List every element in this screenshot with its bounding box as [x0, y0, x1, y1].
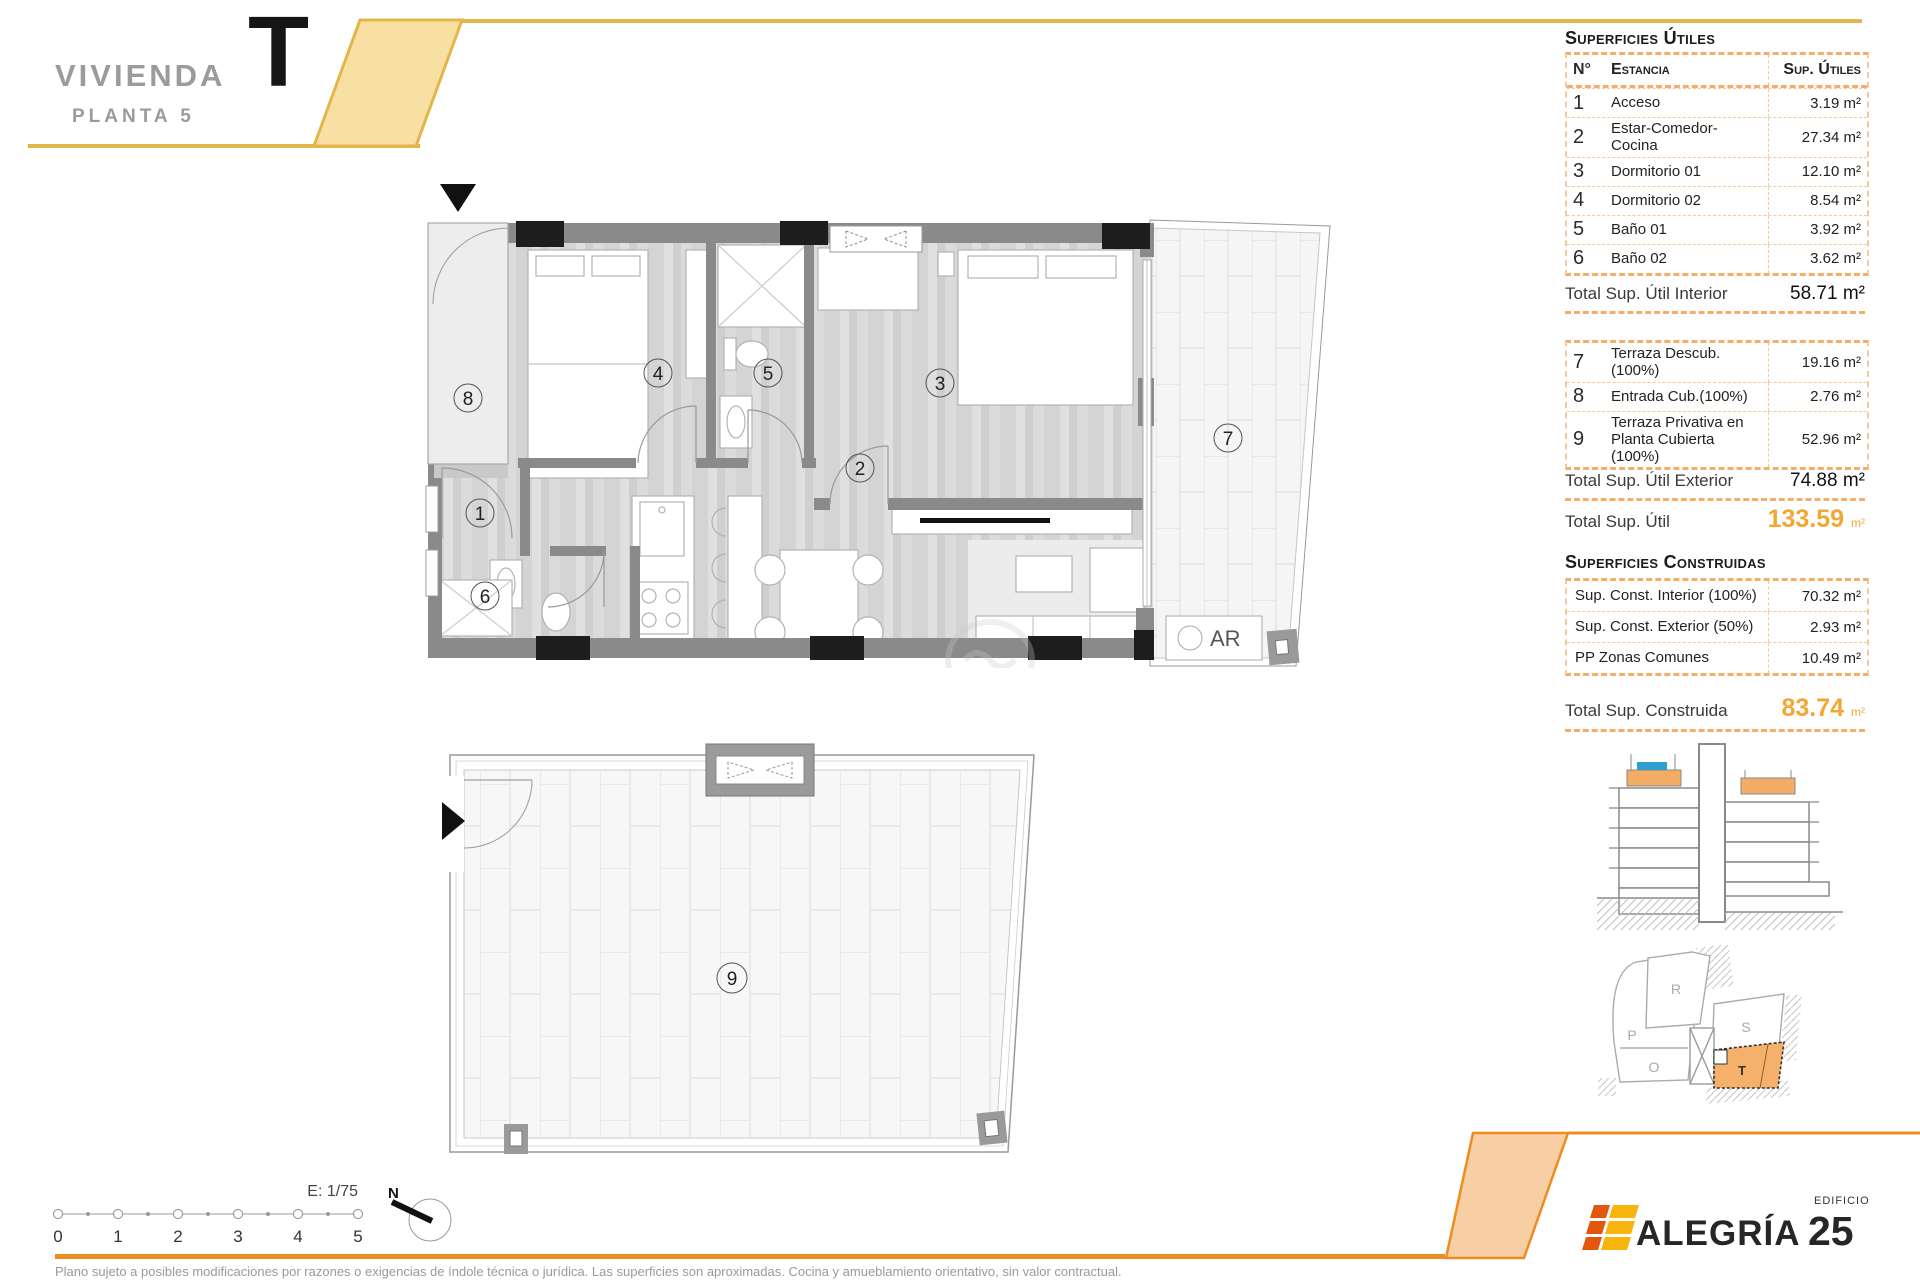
row-name: Estar-Comedor-Cocina — [1607, 118, 1768, 157]
building-section-diagram — [1595, 740, 1850, 935]
table-row: Sup. Const. Interior (100%)70.32 m² — [1567, 581, 1867, 611]
ar-box: AR — [1166, 616, 1262, 660]
col-value: Sup. Útiles — [1768, 55, 1867, 85]
room-label-6: 6 — [480, 587, 491, 608]
sheet-title: VIVIENDA — [55, 58, 225, 94]
row-num: 9 — [1567, 428, 1607, 451]
superficies-exterior-table: 7Terraza Descub.(100%)19.16 m² 8Entrada … — [1565, 340, 1869, 470]
unit-letter-t: T — [1738, 1063, 1746, 1078]
superficies-construidas-table: Sup. Const. Interior (100%)70.32 m² Sup.… — [1565, 578, 1869, 676]
entrance-8 — [428, 223, 509, 464]
superficies-utiles-title: Superficies Útiles — [1565, 28, 1865, 49]
total-util-label: Total Sup. Útil — [1565, 512, 1670, 532]
scale-bar: E: 1/75 0 1 2 3 4 5 N — [40, 1180, 470, 1250]
terrace-tiles — [464, 770, 1020, 1138]
row-num: 8 — [1567, 385, 1607, 408]
table-row: 6Baño 023.62 m² — [1567, 244, 1867, 273]
total-interior-label: Total Sup. Útil Interior — [1565, 284, 1728, 304]
row-value: 52.96 m² — [1768, 412, 1867, 468]
svg-text:2: 2 — [173, 1227, 182, 1246]
superficies-construidas-title: Superficies Construidas — [1565, 552, 1865, 573]
row-num: 3 — [1567, 160, 1607, 183]
row-name: Baño 02 — [1607, 248, 1768, 269]
total-construida-value: 83.74 — [1781, 694, 1844, 722]
row-value: 10.49 m² — [1768, 643, 1867, 673]
col-num: N° — [1567, 61, 1607, 79]
room-label-2: 2 — [855, 459, 866, 480]
row-value: 12.10 m² — [1768, 158, 1867, 186]
unit-t-highlight — [1714, 1042, 1784, 1088]
row-num: 2 — [1567, 126, 1607, 149]
terrace-anchor — [1267, 629, 1300, 665]
highlight-floor-blue — [1637, 762, 1667, 770]
brand-number: 25 — [1808, 1208, 1854, 1254]
skylight-box — [706, 744, 814, 796]
svg-text:1: 1 — [113, 1227, 122, 1246]
brand-name: ALEGRÍA — [1636, 1213, 1801, 1253]
total-exterior-row: Total Sup. Útil Exterior 74.88 m² — [1565, 470, 1865, 501]
table-row: PP Zonas Comunes10.49 m² — [1567, 642, 1867, 673]
row-name: Baño 01 — [1607, 219, 1768, 240]
roof-terrace-plan: 9 — [420, 700, 1080, 1180]
unit-letter-o: O — [1649, 1059, 1660, 1075]
row-num: 7 — [1567, 351, 1607, 374]
svg-text:4: 4 — [293, 1227, 302, 1246]
disclaimer-text: Plano sujeto a posibles modificaciones p… — [55, 1264, 1575, 1279]
title-parallelogram — [300, 16, 480, 150]
table-row: 5Baño 013.92 m² — [1567, 215, 1867, 244]
room-label-9: 9 — [727, 969, 738, 990]
row-value: 70.32 m² — [1768, 581, 1867, 611]
table-row: 7Terraza Descub.(100%)19.16 m² — [1567, 343, 1867, 382]
total-exterior-label: Total Sup. Útil Exterior — [1565, 471, 1733, 491]
table-row: 4Dormitorio 028.54 m² — [1567, 186, 1867, 215]
row-name: Entrada Cub.(100%) — [1607, 386, 1768, 407]
scale-ticks: 0 1 2 3 4 5 — [53, 1227, 362, 1246]
brand-parallelogram — [1446, 1133, 1568, 1258]
apartment-floor-plan: AR 1 2 3 4 5 6 7 8 — [340, 168, 1340, 668]
unit-letter-s: S — [1741, 1019, 1750, 1035]
room-label-4: 4 — [653, 364, 664, 385]
total-interior-value: 58.71 m² — [1790, 283, 1865, 305]
alegria-logo-icon — [1582, 1205, 1639, 1250]
total-construida-label: Total Sup. Construida — [1565, 701, 1728, 721]
ground-hatch-right — [1725, 912, 1835, 930]
brand-band: ALEGRÍA EDIFICIO 25 — [1440, 1126, 1920, 1280]
row-value: 2.93 m² — [1768, 612, 1867, 642]
room-label-5: 5 — [763, 364, 774, 385]
row-value: 2.76 m² — [1768, 383, 1867, 411]
total-util-row: Total Sup. Útil 133.59 m² — [1565, 505, 1865, 540]
row-value: 27.34 m² — [1768, 118, 1867, 157]
total-construida-row: Total Sup. Construida 83.74 m² — [1565, 694, 1865, 732]
room-label-1: 1 — [475, 504, 486, 525]
row-value: 19.16 m² — [1768, 343, 1867, 382]
north-arrow-icon: N — [388, 1185, 451, 1241]
entry-marker-icon — [440, 184, 476, 212]
table-row: 3Dormitorio 0112.10 m² — [1567, 157, 1867, 186]
table-row: Sup. Const. Exterior (50%)2.93 m² — [1567, 611, 1867, 642]
table-row: 8Entrada Cub.(100%)2.76 m² — [1567, 382, 1867, 411]
superficies-utiles-table: N° Estancia Sup. Útiles 1Acceso3.19 m² 2… — [1565, 52, 1869, 276]
top-accent-line — [360, 19, 1862, 23]
table-row: 2Estar-Comedor-Cocina27.34 m² — [1567, 117, 1867, 157]
row-name: PP Zonas Comunes — [1567, 647, 1768, 668]
row-value: 3.19 m² — [1768, 89, 1867, 117]
row-num: 1 — [1567, 92, 1607, 115]
room-label-8: 8 — [463, 389, 474, 410]
closet-symbol — [830, 226, 922, 252]
terrace-7 — [1150, 220, 1330, 666]
table-row: 1Acceso3.19 m² — [1567, 88, 1867, 117]
svg-text:0: 0 — [53, 1227, 62, 1246]
footer-accent-line — [55, 1254, 1445, 1259]
row-value: 8.54 m² — [1768, 187, 1867, 215]
total-util-unit: m² — [1851, 516, 1865, 530]
sheet-subtitle: PLANTA 5 — [72, 106, 195, 128]
unit-letter-p: P — [1627, 1027, 1636, 1043]
row-value: 3.92 m² — [1768, 216, 1867, 244]
table-header-row: N° Estancia Sup. Útiles — [1567, 55, 1867, 88]
row-name: Terraza Privativa en Planta Cubierta (10… — [1607, 412, 1768, 468]
total-interior-row: Total Sup. Útil Interior 58.71 m² — [1565, 283, 1865, 314]
row-num: 6 — [1567, 247, 1607, 270]
unit-letter-r: R — [1671, 981, 1681, 997]
row-num: 4 — [1567, 189, 1607, 212]
row-value: 3.62 m² — [1768, 245, 1867, 273]
ar-label: AR — [1210, 626, 1241, 651]
room-label-3: 3 — [935, 374, 946, 395]
highlight-floor-left — [1627, 770, 1681, 786]
svg-text:3: 3 — [233, 1227, 242, 1246]
col-name: Estancia — [1607, 59, 1768, 81]
row-name: Acceso — [1607, 92, 1768, 113]
total-construida-unit: m² — [1851, 705, 1865, 719]
ground-hatch-left — [1597, 898, 1699, 930]
highlight-floor-right — [1741, 778, 1795, 794]
row-name: Dormitorio 02 — [1607, 190, 1768, 211]
site-key-plan: P R O S T — [1588, 938, 1840, 1118]
row-name: Sup. Const. Exterior (50%) — [1567, 616, 1768, 637]
total-util-value: 133.59 — [1768, 505, 1844, 533]
svg-text:5: 5 — [353, 1227, 362, 1246]
table-row: 9Terraza Privativa en Planta Cubierta (1… — [1567, 411, 1867, 468]
scale-label: E: 1/75 — [307, 1183, 358, 1200]
row-num: 5 — [1567, 218, 1607, 241]
building-core — [1699, 744, 1725, 922]
plan-sheet: VIVIENDA PLANTA 5 T — [0, 0, 1920, 1280]
room-label-7: 7 — [1223, 429, 1234, 450]
brand-edificio: EDIFICIO — [1814, 1195, 1870, 1207]
total-exterior-value: 74.88 m² — [1790, 470, 1865, 492]
north-label: N — [388, 1185, 399, 1202]
row-name: Terraza Descub.(100%) — [1607, 343, 1768, 382]
row-name: Dormitorio 01 — [1607, 161, 1768, 182]
row-name: Sup. Const. Interior (100%) — [1567, 585, 1768, 606]
